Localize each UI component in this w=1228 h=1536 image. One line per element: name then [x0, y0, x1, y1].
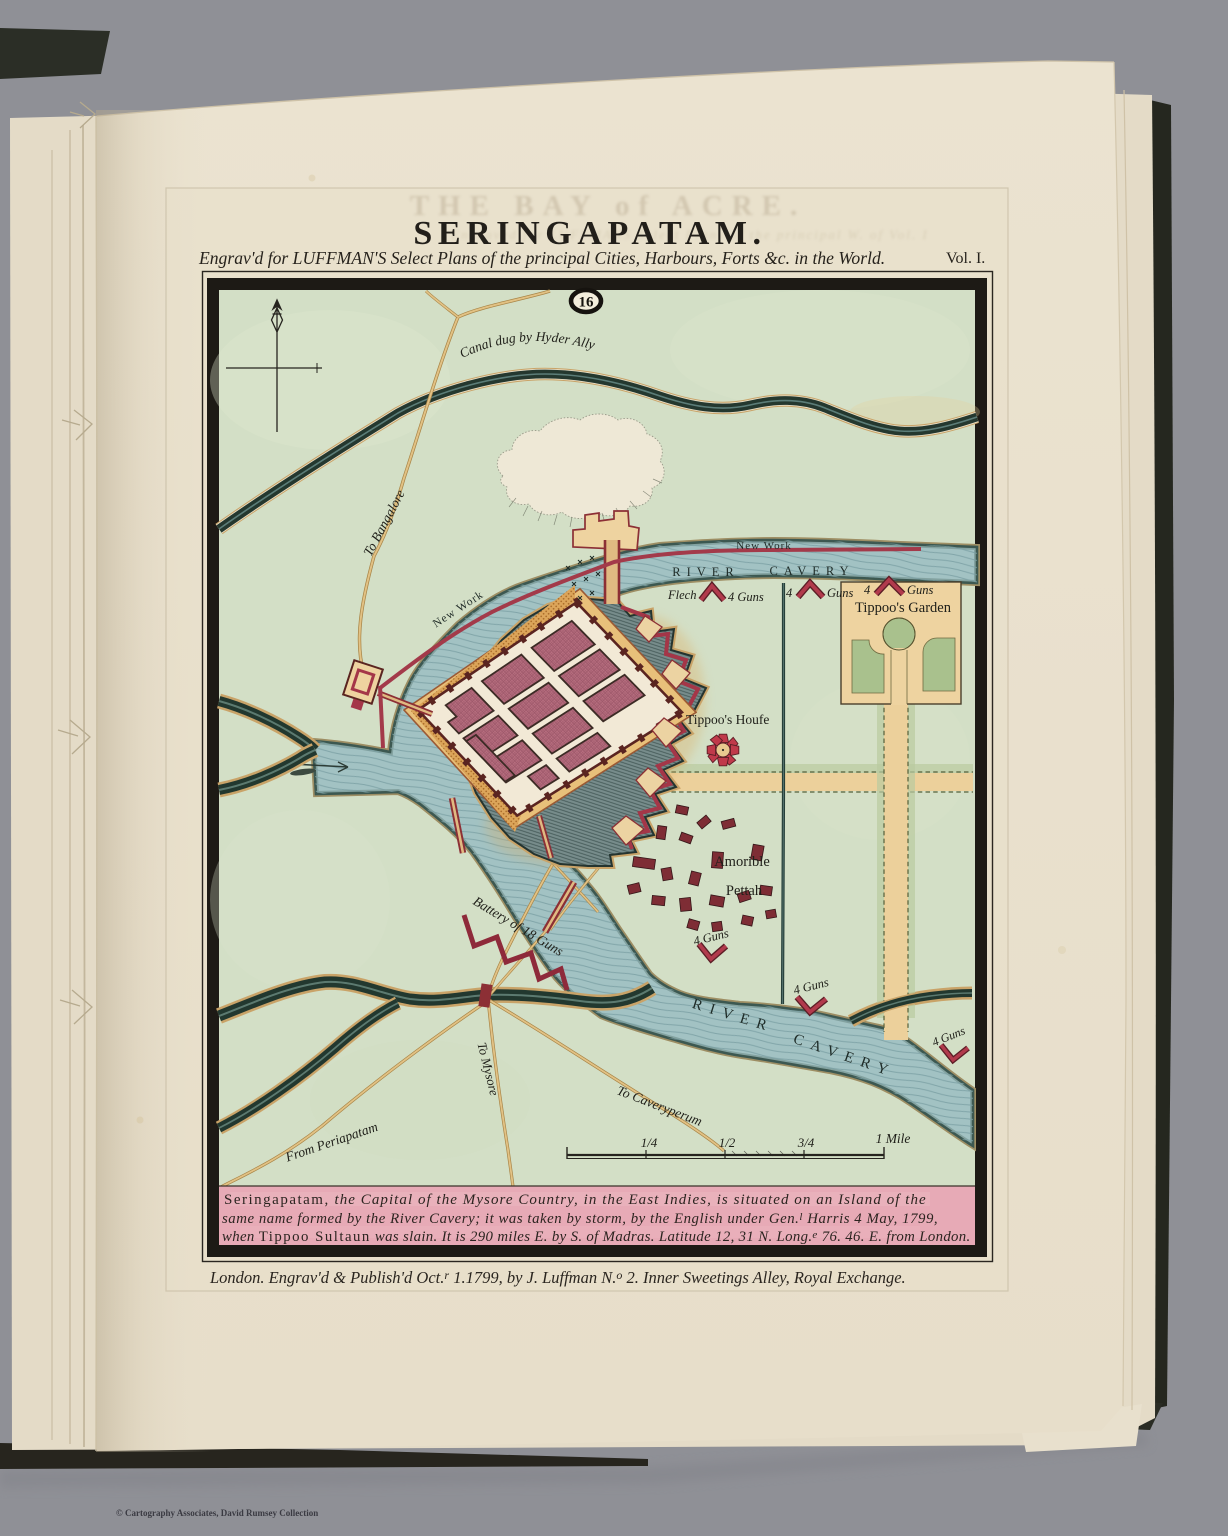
svg-text:Engrav'd for LUFFMAN'S Select: Engrav'd for LUFFMAN'S Select Plans of t… — [198, 248, 885, 268]
svg-text:1/4: 1/4 — [641, 1135, 658, 1150]
svg-text:Tippoo's Garden: Tippoo's Garden — [855, 600, 952, 616]
svg-text:4 Guns: 4 Guns — [728, 590, 764, 604]
svg-text:Pettah: Pettah — [726, 883, 763, 899]
svg-text:1 Mile: 1 Mile — [876, 1131, 911, 1146]
svg-text:Guns: Guns — [907, 583, 934, 597]
svg-text:16: 16 — [579, 295, 595, 311]
svg-text:3/4: 3/4 — [797, 1135, 815, 1150]
svg-text:4: 4 — [864, 583, 870, 597]
svg-text:New Work: New Work — [736, 540, 792, 552]
svg-text:Flech: Flech — [667, 588, 696, 602]
svg-text:Vol. I.: Vol. I. — [946, 250, 985, 267]
svg-text:SERINGAPATAM.: SERINGAPATAM. — [413, 215, 766, 252]
svg-text:© Cartography Associates, Davi: © Cartography Associates, David Rumsey C… — [116, 1508, 318, 1518]
svg-text:Guns: Guns — [827, 586, 854, 600]
svg-text:same name formed by the River: same name formed by the River Cavery; it… — [222, 1211, 938, 1227]
svg-text:Tippoo's Houfe: Tippoo's Houfe — [686, 712, 769, 727]
svg-text:CAVERY: CAVERY — [769, 564, 854, 578]
svg-text:1/2: 1/2 — [719, 1135, 736, 1150]
svg-text:Seringapatam, the Capital of t: Seringapatam, the Capital of the Mysore … — [224, 1192, 927, 1208]
svg-text:London. Engrav'd & Publish'd O: London. Engrav'd & Publish'd Oct.r 1.179… — [209, 1268, 906, 1287]
svg-text:RIVER: RIVER — [672, 565, 740, 579]
svg-text:4: 4 — [786, 586, 792, 600]
svg-text:when Tippoo Sultaun was slain.: when Tippoo Sultaun was slain. It is 290… — [222, 1229, 971, 1245]
svg-text:Amorible: Amorible — [714, 854, 770, 870]
